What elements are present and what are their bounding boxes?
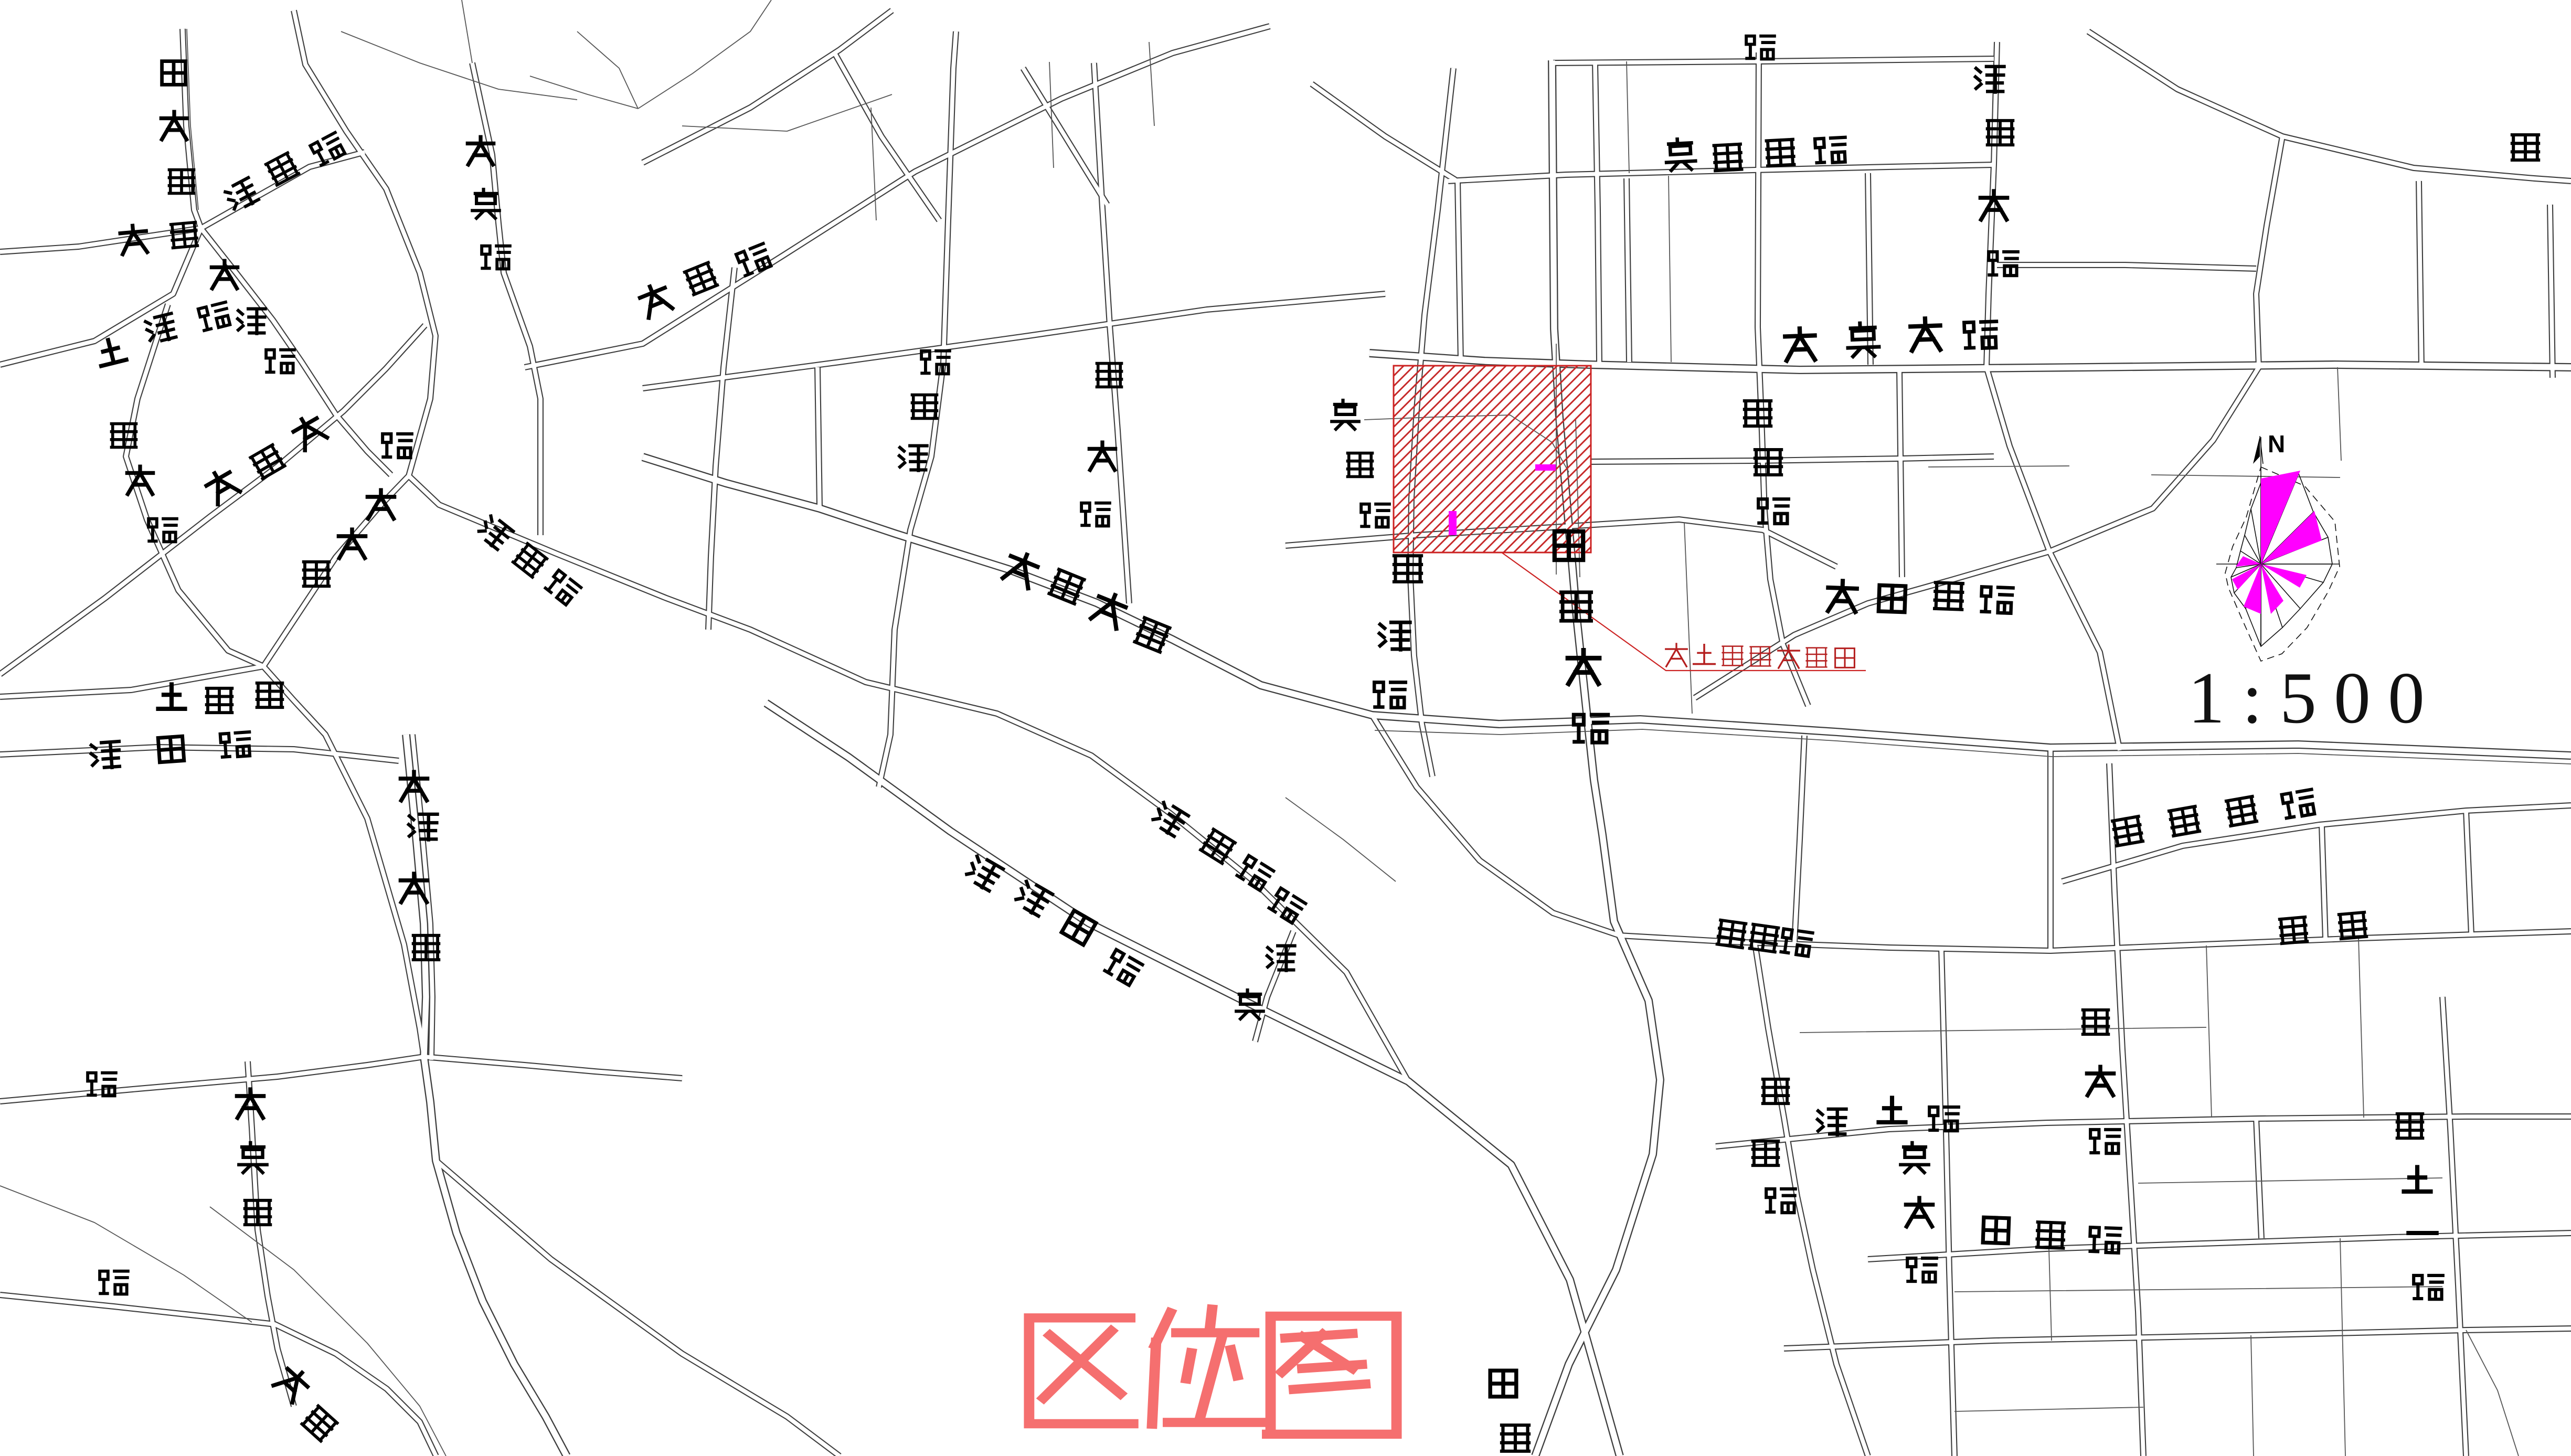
svg-text:N: N: [2268, 430, 2285, 458]
svg-text:1:500: 1:500: [2188, 657, 2442, 739]
